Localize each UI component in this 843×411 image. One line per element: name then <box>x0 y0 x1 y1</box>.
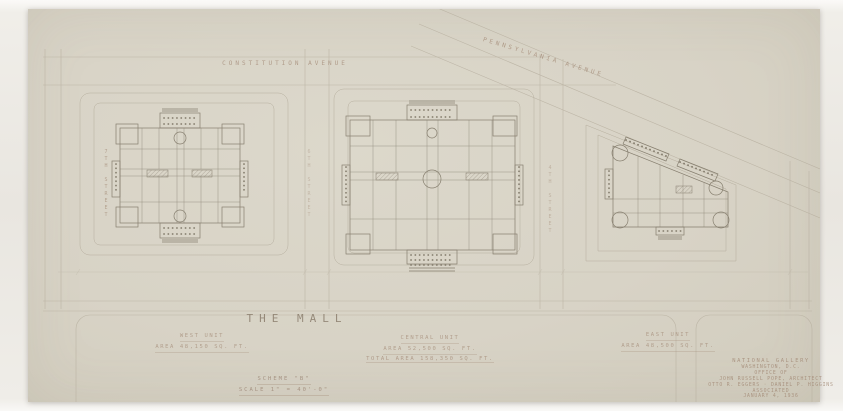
title-block: NATIONAL GALLERY WASHINGTON, D.C. OFFICE… <box>698 359 843 400</box>
scheme-label: SCHEME "B" SCALE 1" = 40'-0" <box>226 374 342 396</box>
central-interior-walls <box>350 120 515 250</box>
constitution-avenue-label: CONSTITUTION AVENUE <box>205 60 365 67</box>
central-rotunda <box>423 170 441 188</box>
central-unit-area: AREA 52,500 SQ. FT. <box>383 344 476 355</box>
east-unit-area: AREA 48,500 SQ. FT. <box>621 341 714 352</box>
scale-note: SCALE 1" = 40'-0" <box>239 385 329 396</box>
associates-line: OTTO R. EGGERS · DANIEL P. HIGGINS <box>698 383 843 389</box>
architect-line: JOHN RUSSELL POPE, ARCHITECT <box>698 377 843 383</box>
west-street-label: 7TH STREET <box>103 149 109 219</box>
east-interior-walls <box>613 156 728 227</box>
central-unit-plan <box>334 89 534 271</box>
west-south-portico <box>160 223 200 238</box>
central-unit-name: CENTRAL UNIT <box>401 333 460 344</box>
date-line: JANUARY 4, 1936 <box>698 394 843 400</box>
middle-street-label: 6TH STREET <box>306 149 312 219</box>
central-stair-hatch <box>376 173 398 180</box>
east-unit-name: EAST UNIT <box>646 330 690 341</box>
central-unit-label: CENTRAL UNIT AREA 52,500 SQ. FT. <box>360 333 500 355</box>
dimension-line <box>58 269 808 275</box>
west-unit-name: WEST UNIT <box>180 331 224 342</box>
east-unit-label: EAST UNIT AREA 48,500 SQ. FT. <box>596 330 740 352</box>
east-unit-plan <box>586 125 736 261</box>
scheme-name: SCHEME "B" <box>257 374 310 385</box>
the-mall-label: THE MALL <box>222 312 372 325</box>
central-block-curbs <box>334 89 534 265</box>
photographed-drawing: CONSTITUTION AVENUE PENNSYLVANIA AVENUE … <box>0 0 843 411</box>
east-stair-hatch <box>676 186 692 193</box>
west-unit-plan <box>80 93 288 255</box>
west-unit-label: WEST UNIT AREA 48,150 SQ. FT. <box>132 331 272 353</box>
central-stair-hatch <box>466 173 488 180</box>
west-north-portico <box>160 113 200 128</box>
east-column-dots <box>609 140 715 231</box>
west-unit-area: AREA 48,150 SQ. FT. <box>155 342 248 353</box>
total-area-label: TOTAL AREA 158,350 SQ. FT. <box>352 356 508 363</box>
west-stair-hatch <box>147 170 168 177</box>
east-street-label: 4TH STREET <box>547 165 553 235</box>
pennsylvania-avenue-lines <box>411 9 820 218</box>
central-south-portico <box>407 250 457 264</box>
west-stair-hatch <box>192 170 212 177</box>
